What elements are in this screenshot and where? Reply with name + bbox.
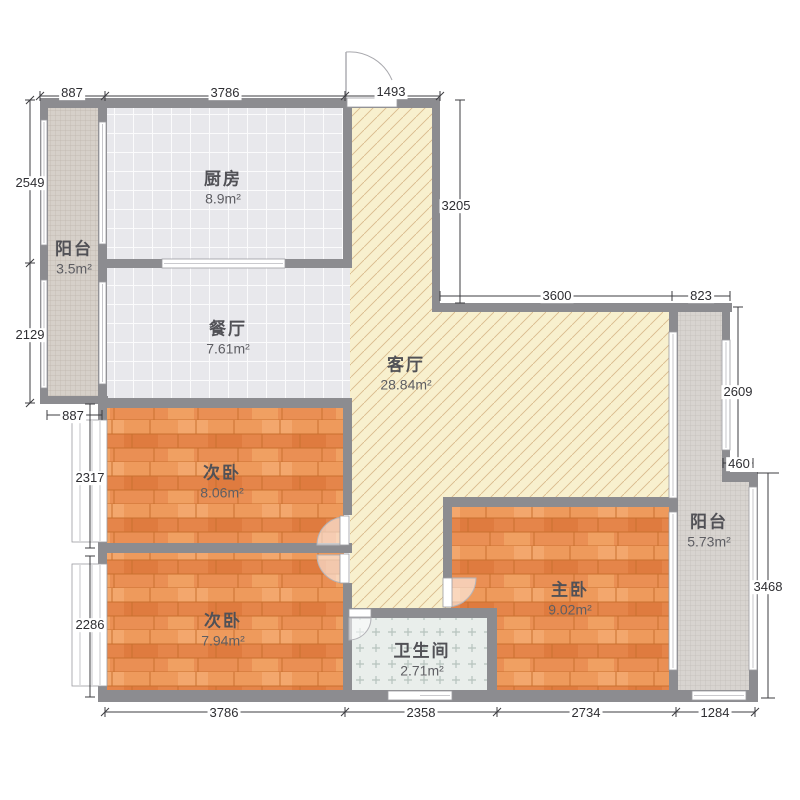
wall-bedroom-upper-top	[98, 398, 352, 408]
bathroom-door-leaf	[349, 609, 371, 617]
bedroom-upper-area: 8.06m²	[200, 484, 244, 500]
dim-bottom-3786: 3786	[208, 706, 241, 720]
dim-chain-left	[25, 100, 35, 403]
label-bedroom-upper: 次卧 8.06m²	[200, 464, 244, 501]
living-name: 客厅	[380, 356, 431, 376]
dim-left-2286: 2286	[74, 618, 107, 632]
dim-right-3205: 3205	[440, 199, 473, 213]
label-dining: 餐厅 7.61m²	[206, 320, 250, 357]
wall-between-bedrooms	[98, 543, 352, 553]
wall-master-left	[443, 497, 452, 578]
label-balcony-right: 阳台 5.73m²	[687, 513, 731, 550]
dim-bottom-2358: 2358	[405, 706, 438, 720]
dim-chain-living-top	[440, 291, 730, 301]
wall-master-top	[443, 497, 678, 507]
label-kitchen: 厨房 8.9m²	[204, 170, 242, 207]
dim-bottom-2734: 2734	[570, 706, 603, 720]
master-name: 主卧	[548, 581, 592, 601]
dining-area: 7.61m²	[206, 340, 250, 356]
floor-plan-canvas: 厨房 8.9m² 阳台 3.5m² 餐厅 7.61m² 客厅 28.84m² 次…	[0, 0, 800, 800]
balcony-left-name: 阳台	[55, 240, 93, 260]
dim-top-3786: 3786	[209, 86, 242, 100]
label-living: 客厅 28.84m²	[380, 356, 431, 393]
label-bathroom: 卫生间 2.71m²	[394, 642, 451, 679]
dim-top-887: 887	[59, 86, 85, 100]
kitchen-area: 8.9m²	[204, 190, 242, 206]
kitchen-name: 厨房	[204, 170, 242, 190]
dim-left-2317: 2317	[74, 471, 107, 485]
wall-bathroom-right	[487, 608, 497, 700]
label-bedroom-lower: 次卧 7.94m²	[201, 612, 245, 649]
bathroom-name: 卫生间	[394, 642, 451, 662]
dim-right-3600: 3600	[541, 289, 574, 303]
bedroom-upper-door-leaf	[340, 516, 349, 545]
entry-door-bar	[347, 98, 397, 107]
dim-left-2549: 2549	[14, 176, 47, 190]
master-area: 9.02m²	[548, 601, 592, 617]
dim-right-460: 460	[726, 457, 752, 471]
label-balcony-left: 阳台 3.5m²	[55, 240, 93, 277]
bathroom-area: 2.71m²	[394, 662, 451, 678]
floor-plan-drawing	[0, 0, 800, 800]
wall-kitchen-right	[343, 98, 352, 268]
wall-bedrooms-right-pier	[343, 545, 352, 553]
bedroom-lower-door-leaf	[340, 554, 349, 583]
label-master: 主卧 9.02m²	[548, 581, 592, 618]
wall-bedrooms-right-a	[343, 398, 352, 515]
dim-left-2129: 2129	[14, 328, 47, 342]
dim-right-3468: 3468	[752, 580, 785, 594]
balcony-right-area: 5.73m²	[687, 533, 731, 549]
dim-right-823: 823	[688, 289, 714, 303]
wall-balcony-left-bottom	[40, 396, 108, 404]
bedroom-lower-name: 次卧	[201, 612, 245, 632]
bedroom-lower-area: 7.94m²	[201, 632, 245, 648]
living-area: 28.84m²	[380, 376, 431, 392]
master-door-leaf	[443, 578, 452, 607]
dim-left-887: 887	[60, 409, 86, 423]
entry-door-swing-arc	[346, 52, 392, 80]
wall-top-right	[432, 303, 732, 312]
dining-name: 餐厅	[206, 320, 250, 340]
dim-right-2609: 2609	[722, 385, 755, 399]
bedroom-upper-name: 次卧	[200, 464, 244, 484]
balcony-left-area: 3.5m²	[55, 260, 93, 276]
balcony-right-name: 阳台	[687, 513, 731, 533]
dim-bottom-1284: 1284	[699, 706, 732, 720]
dim-top-1493: 1493	[375, 85, 408, 99]
